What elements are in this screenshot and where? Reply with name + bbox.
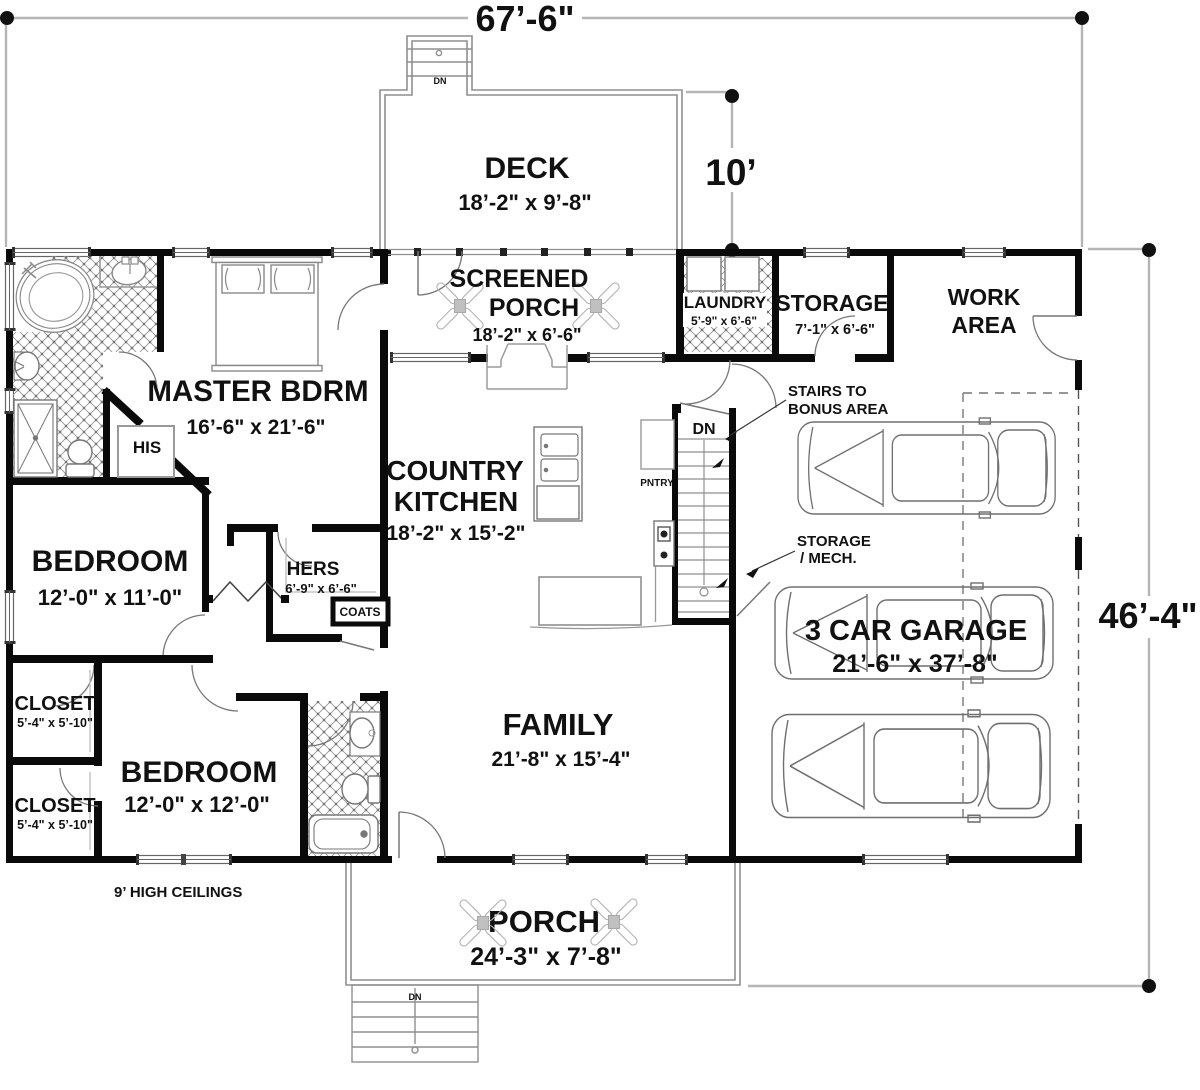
svg-text:CLOSET: CLOSET [14,795,95,817]
svg-text:BONUS AREA: BONUS AREA [788,401,888,418]
svg-text:18’-2" x 6’-6": 18’-2" x 6’-6" [472,325,581,345]
svg-text:21’-6" x 37’-8": 21’-6" x 37’-8" [832,650,997,678]
svg-text:PORCH: PORCH [488,904,600,939]
svg-text:COATS: COATS [339,605,380,619]
svg-text:KITCHEN: KITCHEN [394,486,518,517]
svg-text:/ MECH.: / MECH. [800,550,857,567]
svg-text:BEDROOM: BEDROOM [32,545,189,578]
svg-text:24’-3" x 7’-8": 24’-3" x 7’-8" [470,943,622,971]
svg-text:3 CAR GARAGE: 3 CAR GARAGE [805,615,1027,647]
svg-text:DN: DN [434,76,447,86]
svg-text:STORAGE: STORAGE [797,533,871,550]
svg-text:7’-1" x 6’-6": 7’-1" x 6’-6" [795,322,875,338]
svg-text:MASTER BDRM: MASTER BDRM [147,375,368,408]
svg-text:HIS: HIS [133,438,161,457]
svg-text:10’: 10’ [705,152,756,193]
svg-text:HERS: HERS [287,559,340,580]
svg-text:STORAGE: STORAGE [775,290,888,316]
svg-text:5’-4" x 5’-10": 5’-4" x 5’-10" [17,818,93,832]
svg-text:9’ HIGH CEILINGS: 9’ HIGH CEILINGS [114,884,242,901]
svg-text:SCREENED: SCREENED [450,265,589,293]
svg-text:67’-6": 67’-6" [475,0,574,39]
svg-text:PNTRY: PNTRY [640,478,674,489]
svg-text:18’-2" x 15’-2": 18’-2" x 15’-2" [387,522,526,545]
svg-text:6’-9" x 6’-6": 6’-9" x 6’-6" [285,581,357,596]
svg-text:5’-4" x 5’-10": 5’-4" x 5’-10" [17,716,93,730]
svg-text:BEDROOM: BEDROOM [121,756,278,789]
svg-text:21’-8" x 15’-4": 21’-8" x 15’-4" [492,748,631,771]
svg-text:DECK: DECK [484,152,569,185]
svg-text:DN: DN [692,421,715,438]
svg-text:PORCH: PORCH [489,294,579,322]
svg-text:16’-6" x 21’-6": 16’-6" x 21’-6" [187,416,326,439]
svg-text:LAUNDRY: LAUNDRY [684,293,767,312]
svg-text:12’-0" x 11’-0": 12’-0" x 11’-0" [38,585,182,610]
svg-text:DN: DN [409,992,422,1002]
svg-text:18’-2" x 9’-8": 18’-2" x 9’-8" [458,190,591,215]
svg-text:46’-4": 46’-4" [1098,595,1197,636]
svg-text:AREA: AREA [951,312,1016,338]
svg-text:STAIRS TO: STAIRS TO [788,383,867,400]
svg-text:CLOSET: CLOSET [14,693,95,715]
svg-text:COUNTRY: COUNTRY [386,455,524,486]
svg-text:5’-9" x 6’-6": 5’-9" x 6’-6" [691,314,757,328]
svg-text:FAMILY: FAMILY [503,707,614,742]
svg-text:WORK: WORK [948,284,1021,310]
svg-text:12’-0" x 12’-0": 12’-0" x 12’-0" [124,792,270,817]
